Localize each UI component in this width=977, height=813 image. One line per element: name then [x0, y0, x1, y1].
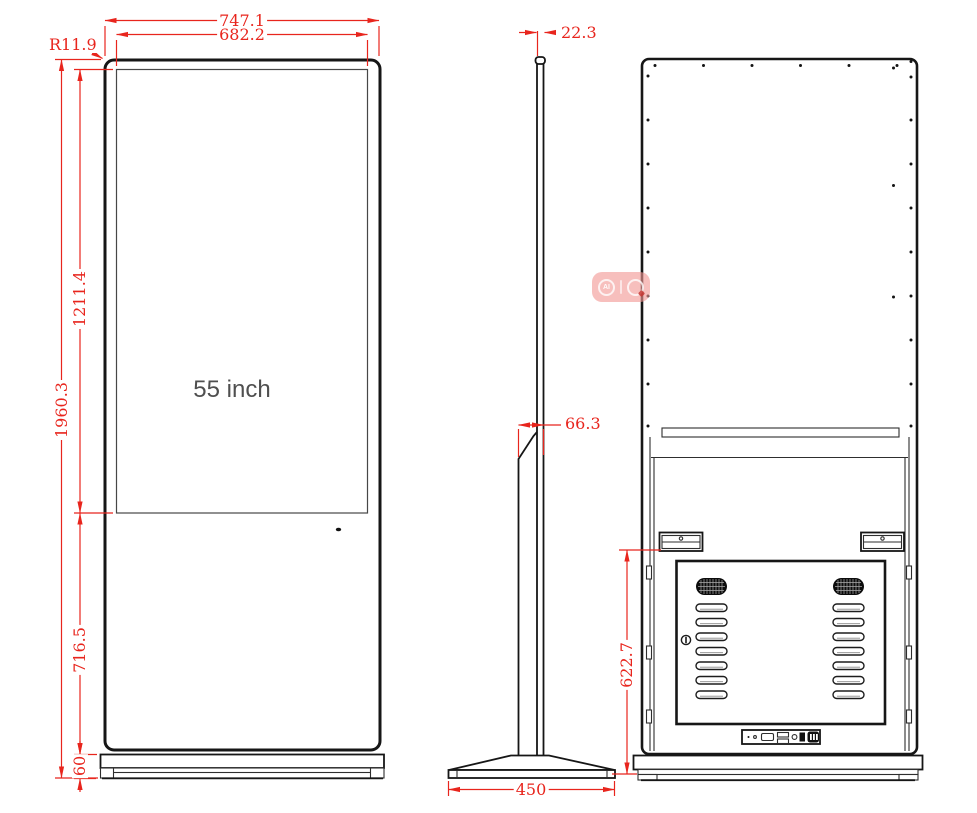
side-base [449, 756, 616, 779]
front-base [101, 755, 385, 779]
dim-back-door-height: 622.7 [619, 640, 635, 690]
mounting-bar [662, 428, 899, 437]
right-vent-louvers [833, 604, 864, 699]
dim-corner-radius: R11.9 [47, 37, 99, 53]
screen-size-label: 55 inch [193, 376, 270, 404]
technical-drawing-canvas: 747.1 682.2 R11.9 1960.3 1211.4 716.5 60… [0, 0, 977, 813]
search-icon-handle [638, 289, 645, 296]
dim-front-screen-width: 682.2 [217, 27, 267, 43]
front-view [101, 60, 385, 778]
ai-badge-icon: AI [598, 279, 615, 296]
search-icon [627, 279, 644, 296]
back-view [634, 59, 923, 780]
right-fan-grille [833, 578, 864, 595]
kiosk-drawing [0, 0, 977, 813]
dim-total-height: 1960.3 [54, 380, 70, 440]
dim-base-depth: 450 [514, 782, 549, 798]
dim-base-height: 60 [72, 754, 88, 778]
dim-side-thickness: 22.3 [559, 25, 599, 41]
watermark-badge: AI [592, 272, 650, 302]
left-handle [660, 533, 703, 552]
io-connector-strip [742, 730, 820, 744]
watermark-divider [620, 280, 622, 294]
dim-lower-height: 716.5 [72, 625, 88, 675]
dim-screen-height: 1211.4 [72, 269, 88, 329]
right-handle [861, 533, 904, 552]
left-vent-louvers [696, 604, 727, 699]
ai-badge-text: AI [603, 284, 610, 291]
access-panel [677, 561, 886, 724]
left-fan-grille [696, 578, 727, 595]
ir-sensor-dot [336, 528, 341, 532]
back-base [634, 756, 923, 781]
dim-side-depth: 66.3 [563, 416, 603, 432]
lock-icon [681, 635, 690, 644]
